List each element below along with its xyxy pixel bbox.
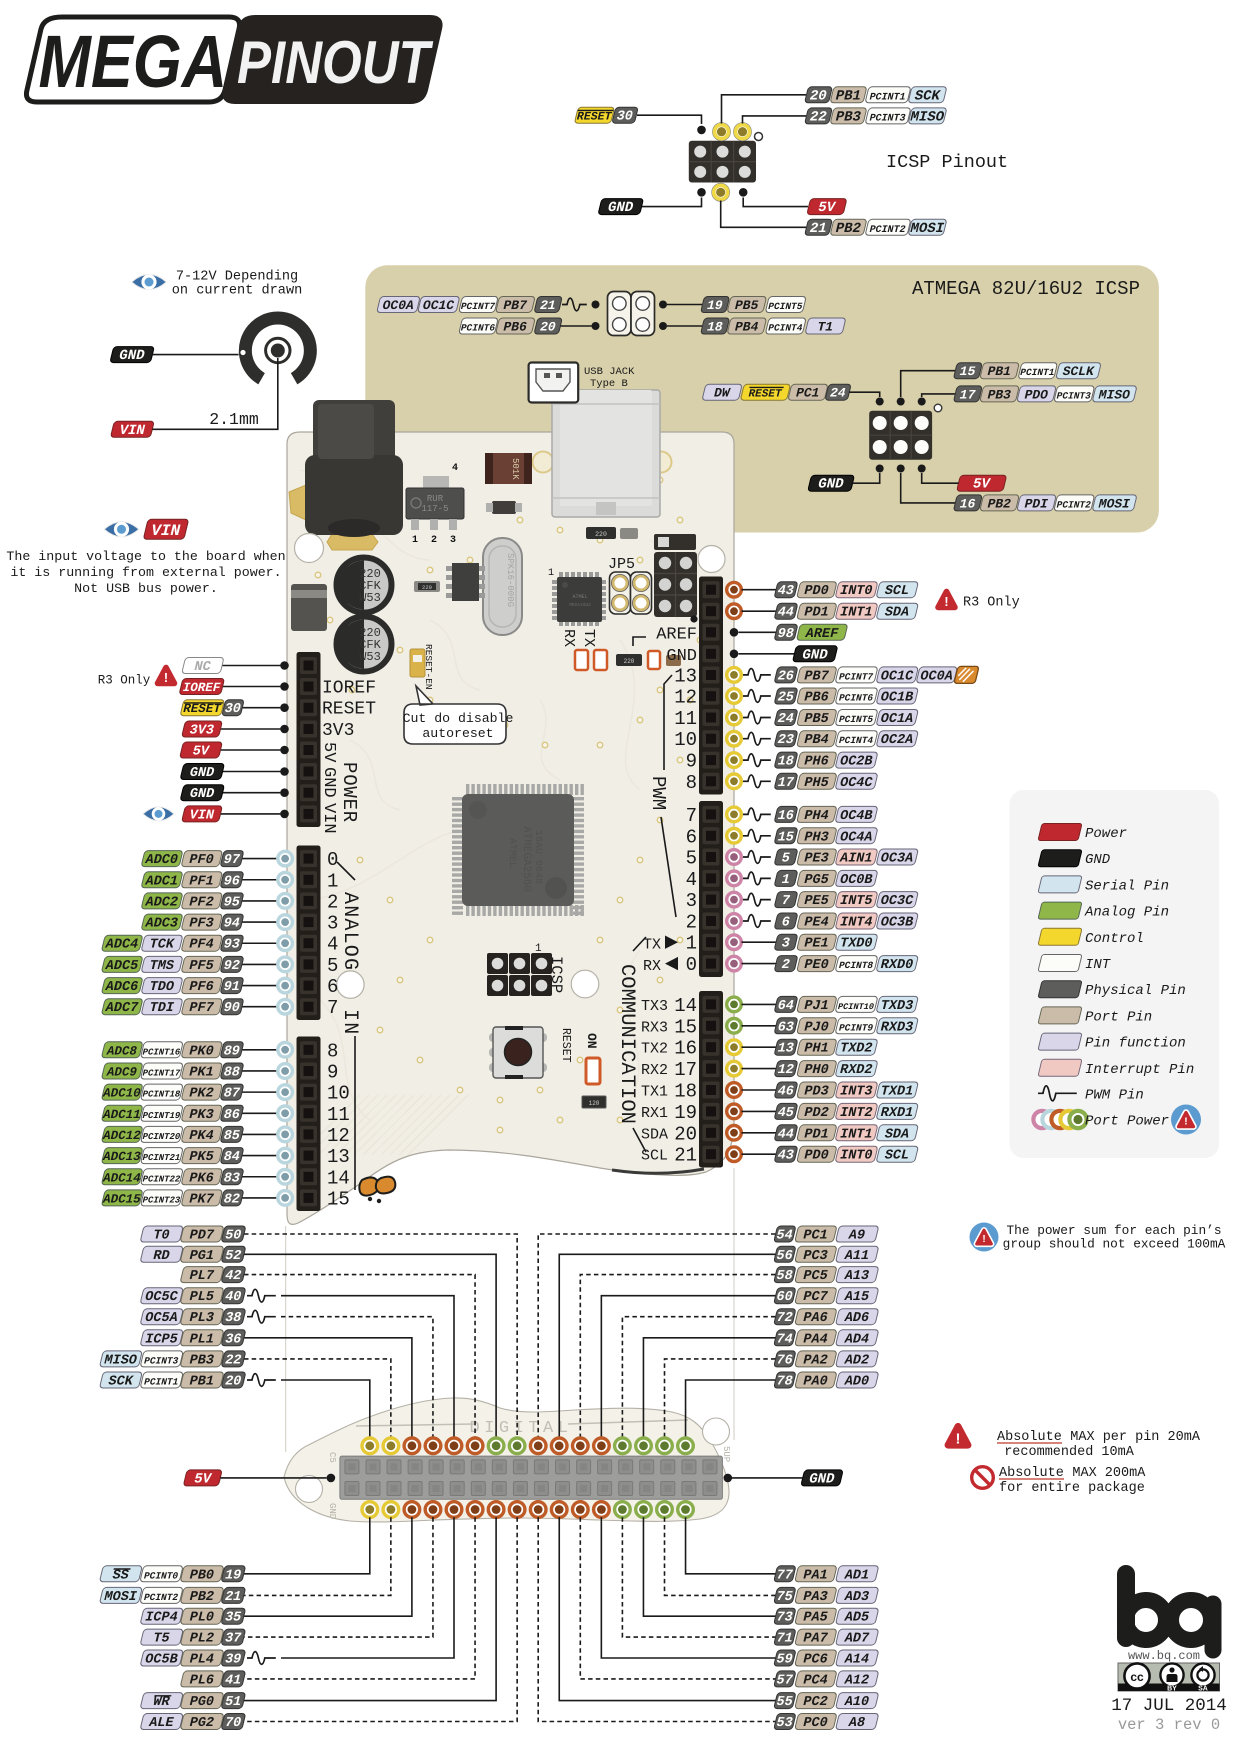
svg-text:TXD2: TXD2 xyxy=(838,1042,874,1057)
svg-text:INT0: INT0 xyxy=(838,1149,874,1164)
svg-text:PF2: PF2 xyxy=(187,896,215,911)
svg-text:RESET: RESET xyxy=(559,1028,572,1063)
svg-text:1: 1 xyxy=(548,568,554,579)
svg-text:PC4: PC4 xyxy=(801,1674,829,1689)
svg-text:11: 11 xyxy=(674,708,697,730)
svg-text:21: 21 xyxy=(674,1145,697,1167)
svg-text:MISO: MISO xyxy=(908,110,946,126)
svg-text:PD0: PD0 xyxy=(802,584,830,599)
svg-text:AD3: AD3 xyxy=(843,1590,871,1605)
svg-text:GND: GND xyxy=(606,200,635,216)
svg-text:AD0: AD0 xyxy=(843,1375,871,1390)
svg-text:TXD3: TXD3 xyxy=(879,999,915,1014)
svg-text:RX1: RX1 xyxy=(641,1105,668,1122)
svg-text:TMS: TMS xyxy=(148,959,176,974)
svg-text:PC3: PC3 xyxy=(801,1249,829,1264)
svg-text:9: 9 xyxy=(686,751,697,773)
svg-text:RXD0: RXD0 xyxy=(879,958,915,973)
svg-text:PJ0: PJ0 xyxy=(802,1020,830,1035)
svg-text:PD0: PD0 xyxy=(802,1149,830,1164)
svg-text:SCL: SCL xyxy=(883,1149,911,1164)
svg-text:INT: INT xyxy=(1085,957,1111,973)
svg-text:RUR: RUR xyxy=(427,494,444,504)
svg-text:RX3: RX3 xyxy=(641,1019,668,1036)
svg-text:MOSI: MOSI xyxy=(102,1590,138,1605)
svg-text:PB1: PB1 xyxy=(834,88,863,104)
svg-text:PB6: PB6 xyxy=(502,320,529,335)
svg-text:AIN1: AIN1 xyxy=(838,852,874,867)
svg-text:PK4: PK4 xyxy=(187,1129,215,1144)
svg-text:ADC1: ADC1 xyxy=(144,874,180,889)
svg-text:PCINT3: PCINT3 xyxy=(1055,391,1092,402)
svg-text:PF3: PF3 xyxy=(187,917,215,932)
svg-text:PA2: PA2 xyxy=(801,1354,829,1369)
svg-text:PCINT10: PCINT10 xyxy=(837,1002,875,1012)
svg-text:ICP5: ICP5 xyxy=(143,1332,179,1347)
svg-text:PB3: PB3 xyxy=(986,388,1013,403)
svg-text:ADC2: ADC2 xyxy=(144,896,180,911)
svg-text:GND: GND xyxy=(807,1472,836,1488)
svg-text:PCINT9: PCINT9 xyxy=(838,1022,875,1033)
svg-text:PCINT16: PCINT16 xyxy=(141,1046,181,1057)
svg-text:GND: GND xyxy=(319,767,338,798)
svg-text:3: 3 xyxy=(686,890,697,912)
svg-text:R3 Only: R3 Only xyxy=(98,674,151,688)
svg-text:PD1: PD1 xyxy=(802,606,830,621)
svg-text:ADC12: ADC12 xyxy=(101,1128,142,1143)
svg-text:PCINT5: PCINT5 xyxy=(767,301,804,312)
svg-text:PCINT2: PCINT2 xyxy=(1055,500,1092,511)
svg-text:13: 13 xyxy=(674,666,697,688)
svg-text:TDO: TDO xyxy=(148,980,176,995)
svg-text:PINOUT: PINOUT xyxy=(237,29,433,96)
svg-text:220: 220 xyxy=(624,658,635,665)
svg-text:OC3B: OC3B xyxy=(879,916,915,931)
svg-text:ON: ON xyxy=(584,1033,599,1049)
svg-text:SCL: SCL xyxy=(641,1148,668,1165)
svg-text:7: 7 xyxy=(686,805,697,827)
svg-text:PL3: PL3 xyxy=(188,1311,216,1326)
svg-text:MEGA: MEGA xyxy=(38,20,227,103)
svg-text:ADC13: ADC13 xyxy=(101,1149,142,1164)
svg-text:5V: 5V xyxy=(319,742,338,763)
svg-text:12: 12 xyxy=(327,1125,350,1147)
svg-text:PG5: PG5 xyxy=(802,873,830,888)
svg-text:AREF: AREF xyxy=(656,625,697,644)
svg-text:PB1: PB1 xyxy=(986,364,1013,379)
svg-text:117-5: 117-5 xyxy=(421,504,448,514)
svg-text:A11: A11 xyxy=(843,1249,871,1264)
svg-text:INT0: INT0 xyxy=(838,584,874,599)
svg-text:PB3: PB3 xyxy=(188,1354,216,1369)
svg-text:GND: GND xyxy=(816,477,845,493)
svg-text:MAX 200mA: MAX 200mA xyxy=(1072,1466,1146,1481)
svg-text:17: 17 xyxy=(674,1059,697,1081)
svg-text:PB1: PB1 xyxy=(188,1375,216,1390)
svg-text:USB JACK: USB JACK xyxy=(584,366,635,378)
svg-text:PA6: PA6 xyxy=(801,1311,829,1326)
svg-text:10: 10 xyxy=(674,729,697,751)
svg-text:MOSI: MOSI xyxy=(1097,497,1132,512)
svg-text:PK5: PK5 xyxy=(187,1150,215,1165)
svg-text:ATMEGA 82U/16U2 ICSP: ATMEGA 82U/16U2 ICSP xyxy=(912,278,1140,300)
svg-text:PC2: PC2 xyxy=(801,1695,829,1710)
svg-text:PB7: PB7 xyxy=(802,670,830,685)
svg-text:PK7: PK7 xyxy=(187,1193,215,1208)
svg-text:OC1C: OC1C xyxy=(879,670,915,685)
svg-text:PA4: PA4 xyxy=(801,1332,829,1347)
svg-text:TX1: TX1 xyxy=(641,1084,668,1101)
svg-text:ADC11: ADC11 xyxy=(101,1107,142,1122)
svg-text:PDI: PDI xyxy=(1023,497,1050,512)
svg-text:PB5: PB5 xyxy=(733,298,760,313)
svg-text:OC2A: OC2A xyxy=(879,733,916,748)
svg-text:ADC14: ADC14 xyxy=(101,1170,142,1185)
svg-text:INT5: INT5 xyxy=(838,894,874,909)
svg-text:PWM Pin: PWM Pin xyxy=(1085,1087,1144,1103)
svg-text:PWM: PWM xyxy=(647,776,669,810)
svg-text:AREF: AREF xyxy=(804,627,840,642)
svg-text:PG0: PG0 xyxy=(188,1695,216,1710)
svg-text:PK0: PK0 xyxy=(187,1044,215,1059)
svg-text:220: 220 xyxy=(595,531,607,538)
svg-text:www.bq.com: www.bq.com xyxy=(1128,1649,1200,1663)
svg-text:PL1: PL1 xyxy=(188,1332,216,1347)
svg-text:INT2: INT2 xyxy=(838,1106,874,1121)
svg-text:IOREF: IOREF xyxy=(322,679,376,699)
svg-text:A14: A14 xyxy=(843,1653,871,1668)
svg-text:3V3: 3V3 xyxy=(188,724,216,739)
svg-text:!: ! xyxy=(164,671,168,685)
svg-text:PD3: PD3 xyxy=(802,1085,830,1100)
svg-text:GND: GND xyxy=(188,787,216,802)
svg-text:A15: A15 xyxy=(843,1290,871,1305)
svg-text:Interrupt Pin: Interrupt Pin xyxy=(1085,1062,1194,1078)
svg-text:IOREF: IOREF xyxy=(181,680,222,695)
svg-text:ADC8: ADC8 xyxy=(105,1043,139,1058)
svg-text:AD5: AD5 xyxy=(843,1611,871,1626)
svg-text:ver 3 rev 0: ver 3 rev 0 xyxy=(1118,1716,1220,1734)
svg-text:PCINT3: PCINT3 xyxy=(868,113,907,124)
svg-text:Cut do disable: Cut do disable xyxy=(403,711,514,726)
svg-text:120: 120 xyxy=(589,1100,600,1107)
svg-text:14: 14 xyxy=(674,995,697,1017)
svg-text:PC1: PC1 xyxy=(794,386,821,401)
svg-text:PCINT1: PCINT1 xyxy=(868,92,907,103)
svg-text:7-12V Depending: 7-12V Depending xyxy=(176,270,298,285)
svg-text:3: 3 xyxy=(450,535,456,546)
svg-text:A10: A10 xyxy=(843,1695,871,1710)
svg-text:PF5: PF5 xyxy=(187,959,215,974)
svg-text:PL2: PL2 xyxy=(188,1632,216,1647)
svg-text:PCINT17: PCINT17 xyxy=(141,1068,181,1079)
svg-text:INT1: INT1 xyxy=(838,606,874,621)
svg-text:PJ1: PJ1 xyxy=(802,999,830,1014)
svg-text:OC4B: OC4B xyxy=(838,809,874,824)
svg-text:SCL: SCL xyxy=(883,584,911,599)
svg-text:The input voltage to the board: The input voltage to the board when xyxy=(6,549,285,564)
svg-text:GND: GND xyxy=(327,1503,337,1519)
svg-text:MEGA16U2: MEGA16U2 xyxy=(569,602,591,608)
svg-text:3: 3 xyxy=(327,913,338,935)
svg-text:MISO: MISO xyxy=(102,1354,138,1369)
svg-text:for entire package: for entire package xyxy=(999,1481,1145,1496)
svg-text:GND: GND xyxy=(188,766,216,781)
svg-text:PCINT18: PCINT18 xyxy=(141,1089,181,1100)
svg-text:DIGITAL: DIGITAL xyxy=(470,1419,573,1438)
svg-text:1: 1 xyxy=(412,535,418,546)
svg-text:PH6: PH6 xyxy=(802,755,830,770)
svg-text:ADC15: ADC15 xyxy=(101,1192,142,1207)
svg-text:IN: IN xyxy=(338,1009,361,1035)
svg-text:PCINT2: PCINT2 xyxy=(143,1592,180,1603)
svg-text:ADC9: ADC9 xyxy=(105,1065,139,1080)
svg-text:9: 9 xyxy=(327,1062,338,1084)
svg-text:PF4: PF4 xyxy=(187,938,215,953)
svg-text:INT1: INT1 xyxy=(838,1127,874,1142)
svg-text:Port Power: Port Power xyxy=(1085,1114,1169,1130)
svg-text:SPK16-000G: SPK16-000G xyxy=(505,553,515,607)
svg-text:PL7: PL7 xyxy=(188,1269,216,1284)
svg-text:OC4C: OC4C xyxy=(838,776,874,791)
svg-text:14: 14 xyxy=(327,1167,350,1189)
svg-text:PF0: PF0 xyxy=(187,853,215,868)
svg-text:PCINT4: PCINT4 xyxy=(767,323,804,334)
svg-text:TX2: TX2 xyxy=(641,1041,668,1058)
svg-text:recommended 10mA: recommended 10mA xyxy=(1004,1445,1135,1460)
svg-text:Not USB bus power.: Not USB bus power. xyxy=(74,581,218,596)
svg-text:PCINT23: PCINT23 xyxy=(141,1195,181,1206)
svg-text:ICSP: ICSP xyxy=(547,956,565,993)
svg-text:Physical Pin: Physical Pin xyxy=(1085,983,1186,999)
svg-text:12: 12 xyxy=(674,687,697,709)
svg-text:ALE: ALE xyxy=(147,1716,175,1731)
svg-text:PA0: PA0 xyxy=(801,1375,829,1390)
svg-text:PF7: PF7 xyxy=(187,1001,215,1016)
svg-text:!: ! xyxy=(982,1234,985,1245)
svg-text:7: 7 xyxy=(327,997,338,1019)
svg-text:INT4: INT4 xyxy=(838,916,874,931)
svg-text:PCINT20: PCINT20 xyxy=(141,1131,181,1142)
svg-text:Port Pin: Port Pin xyxy=(1085,1009,1152,1025)
svg-text:GND: GND xyxy=(117,348,146,364)
svg-text:TX: TX xyxy=(643,937,661,954)
svg-text:PCINT6: PCINT6 xyxy=(838,693,875,704)
svg-text:OC0B: OC0B xyxy=(838,873,874,888)
svg-text:OC1A: OC1A xyxy=(879,712,916,727)
svg-text:2: 2 xyxy=(431,535,437,546)
svg-text:PCINT22: PCINT22 xyxy=(141,1173,181,1184)
svg-text:PK3: PK3 xyxy=(187,1108,215,1123)
svg-text:Type B: Type B xyxy=(590,378,628,390)
svg-text:PH3: PH3 xyxy=(802,830,830,845)
svg-text:PE1: PE1 xyxy=(802,937,830,952)
svg-text:RX: RX xyxy=(643,958,661,975)
svg-text:PA1: PA1 xyxy=(801,1568,829,1583)
svg-text:ADC0: ADC0 xyxy=(144,853,180,868)
svg-text:OC1B: OC1B xyxy=(879,691,915,706)
svg-text:18: 18 xyxy=(674,1081,697,1103)
svg-text:SA: SA xyxy=(1198,1686,1208,1693)
svg-text:TXD0: TXD0 xyxy=(838,937,874,952)
svg-text:TXD1: TXD1 xyxy=(879,1085,915,1100)
svg-text:ICP4: ICP4 xyxy=(143,1611,179,1626)
svg-text:TDI: TDI xyxy=(148,1001,176,1016)
svg-text:PCINT1: PCINT1 xyxy=(143,1377,180,1388)
svg-text:VIN: VIN xyxy=(149,521,182,540)
svg-text:PL5: PL5 xyxy=(188,1290,216,1305)
svg-text:6: 6 xyxy=(686,826,697,848)
svg-text:Pin function: Pin function xyxy=(1085,1036,1186,1052)
svg-text:1: 1 xyxy=(686,933,697,955)
svg-text:OC5A: OC5A xyxy=(143,1311,180,1326)
svg-text:0: 0 xyxy=(686,954,697,976)
svg-text:ANALOG: ANALOG xyxy=(338,892,361,971)
svg-text:PB4: PB4 xyxy=(733,320,760,335)
svg-text:PC7: PC7 xyxy=(801,1290,829,1305)
svg-text:RESET-EN: RESET-EN xyxy=(423,644,434,690)
svg-text:TX: TX xyxy=(580,629,597,647)
svg-text:Analog Pin: Analog Pin xyxy=(1084,905,1169,921)
svg-text:RXD3: RXD3 xyxy=(879,1020,915,1035)
svg-text:ADC7: ADC7 xyxy=(104,1001,140,1016)
svg-text:W53: W53 xyxy=(359,650,381,664)
svg-text:SCK: SCK xyxy=(913,88,942,104)
svg-text:AD6: AD6 xyxy=(843,1311,871,1326)
svg-text:RESET: RESET xyxy=(575,110,613,124)
svg-text:8: 8 xyxy=(327,1040,338,1062)
svg-text:PL0: PL0 xyxy=(188,1611,216,1626)
svg-text:ADC3: ADC3 xyxy=(144,917,180,932)
svg-text:VIN: VIN xyxy=(319,803,338,834)
svg-text:PA5: PA5 xyxy=(801,1611,829,1626)
svg-text:INT3: INT3 xyxy=(838,1085,874,1100)
svg-text:20: 20 xyxy=(674,1123,697,1145)
svg-text:16AU 0648: 16AU 0648 xyxy=(532,830,543,884)
svg-text:OC2B: OC2B xyxy=(838,755,874,770)
svg-text:PCINT3: PCINT3 xyxy=(143,1356,180,1367)
svg-text:PCINT8: PCINT8 xyxy=(838,960,875,971)
svg-text:PA7: PA7 xyxy=(801,1632,829,1647)
svg-text:OC5C: OC5C xyxy=(143,1290,179,1305)
svg-text:PB6: PB6 xyxy=(802,691,830,706)
svg-text:PCINT6: PCINT6 xyxy=(460,323,497,334)
svg-text:PB4: PB4 xyxy=(802,733,830,748)
svg-text:autoreset: autoreset xyxy=(422,726,493,741)
svg-text:OC5B: OC5B xyxy=(143,1653,179,1668)
svg-text:6: 6 xyxy=(327,976,338,998)
svg-text:Control: Control xyxy=(1085,931,1144,947)
svg-text:2: 2 xyxy=(327,891,338,913)
svg-text:BY: BY xyxy=(1167,1686,1177,1693)
svg-text:group should not exceed 100mA: group should not exceed 100mA xyxy=(1003,1237,1226,1252)
svg-text:1: 1 xyxy=(535,943,542,955)
svg-text:SDA: SDA xyxy=(641,1126,668,1143)
svg-text:2: 2 xyxy=(686,912,697,934)
svg-text:AD7: AD7 xyxy=(843,1632,871,1647)
svg-text:PCINT1: PCINT1 xyxy=(1019,367,1056,378)
svg-text:5: 5 xyxy=(327,955,338,977)
svg-text:PC6: PC6 xyxy=(801,1653,829,1668)
svg-text:AD4: AD4 xyxy=(843,1332,871,1347)
svg-text:GND: GND xyxy=(666,647,697,666)
svg-text:OC0A: OC0A xyxy=(918,670,955,685)
svg-text:11: 11 xyxy=(327,1104,350,1126)
svg-text:PL6: PL6 xyxy=(188,1674,216,1689)
svg-text:cc: cc xyxy=(1130,1670,1144,1684)
svg-text:ATMEGA2560: ATMEGA2560 xyxy=(520,826,532,892)
svg-text:PH5: PH5 xyxy=(802,776,830,791)
svg-text:13: 13 xyxy=(327,1146,350,1168)
svg-text:AD1: AD1 xyxy=(843,1568,871,1583)
svg-text:PC0: PC0 xyxy=(801,1716,829,1731)
svg-text:ICSP Pinout: ICSP Pinout xyxy=(886,152,1008,173)
svg-text:RXD1: RXD1 xyxy=(879,1106,915,1121)
svg-text:PD7: PD7 xyxy=(188,1229,216,1244)
svg-text:PB2: PB2 xyxy=(188,1590,216,1605)
svg-text:PF1: PF1 xyxy=(187,874,215,889)
svg-text:PH0: PH0 xyxy=(802,1063,830,1078)
svg-text:10: 10 xyxy=(327,1083,350,1105)
svg-text:PCINT4: PCINT4 xyxy=(838,735,875,746)
svg-text:Serial Pin: Serial Pin xyxy=(1085,878,1169,894)
svg-text:SDA: SDA xyxy=(883,606,912,621)
svg-text:OC1C: OC1C xyxy=(421,298,456,313)
svg-text:GND: GND xyxy=(1085,852,1111,868)
svg-text:ADC6: ADC6 xyxy=(104,980,140,995)
svg-text:OC3C: OC3C xyxy=(879,894,915,909)
svg-text:COMMUNICATION: COMMUNICATION xyxy=(615,964,638,1124)
svg-text:PH4: PH4 xyxy=(802,809,830,824)
svg-text:PCINT0: PCINT0 xyxy=(143,1570,180,1581)
svg-text:PB0: PB0 xyxy=(188,1568,216,1583)
svg-text:4: 4 xyxy=(327,934,338,956)
svg-text:PK2: PK2 xyxy=(187,1087,215,1102)
svg-text:0: 0 xyxy=(327,849,338,871)
svg-text:MISO: MISO xyxy=(1097,388,1132,403)
svg-text:ATMEL: ATMEL xyxy=(572,594,587,600)
svg-text:it is running from external po: it is running from external power. xyxy=(10,565,281,580)
svg-text:Power: Power xyxy=(1085,826,1127,842)
svg-text:220: 220 xyxy=(422,584,432,591)
svg-text:PH1: PH1 xyxy=(802,1042,830,1057)
svg-text:19: 19 xyxy=(674,1102,697,1124)
svg-text:4: 4 xyxy=(452,463,458,474)
svg-text:8: 8 xyxy=(686,772,697,794)
svg-text:PB2: PB2 xyxy=(834,221,863,237)
svg-text:SCK: SCK xyxy=(106,1375,135,1390)
svg-text:PE0: PE0 xyxy=(802,958,830,973)
svg-text:PB5: PB5 xyxy=(802,712,830,727)
svg-text:OC0A: OC0A xyxy=(381,298,416,313)
svg-text:PG2: PG2 xyxy=(188,1716,216,1731)
svg-text:PE5: PE5 xyxy=(802,894,830,909)
svg-text:TCK: TCK xyxy=(148,938,177,953)
svg-text:MOSI: MOSI xyxy=(908,221,945,237)
svg-text:ADC5: ADC5 xyxy=(104,959,140,974)
svg-text:!: ! xyxy=(956,1430,961,1447)
svg-text:RX2: RX2 xyxy=(641,1062,668,1079)
svg-text:17 JUL 2014: 17 JUL 2014 xyxy=(1111,1696,1227,1716)
svg-text:R3 Only: R3 Only xyxy=(963,596,1020,611)
svg-text:RX: RX xyxy=(560,629,577,647)
svg-text:PK6: PK6 xyxy=(187,1171,215,1186)
svg-text:PCINT7: PCINT7 xyxy=(838,672,875,683)
svg-text:POWER: POWER xyxy=(338,762,360,823)
svg-text:RXD2: RXD2 xyxy=(838,1063,874,1078)
svg-text:GND: GND xyxy=(800,647,829,663)
svg-text:PB7: PB7 xyxy=(502,298,529,313)
